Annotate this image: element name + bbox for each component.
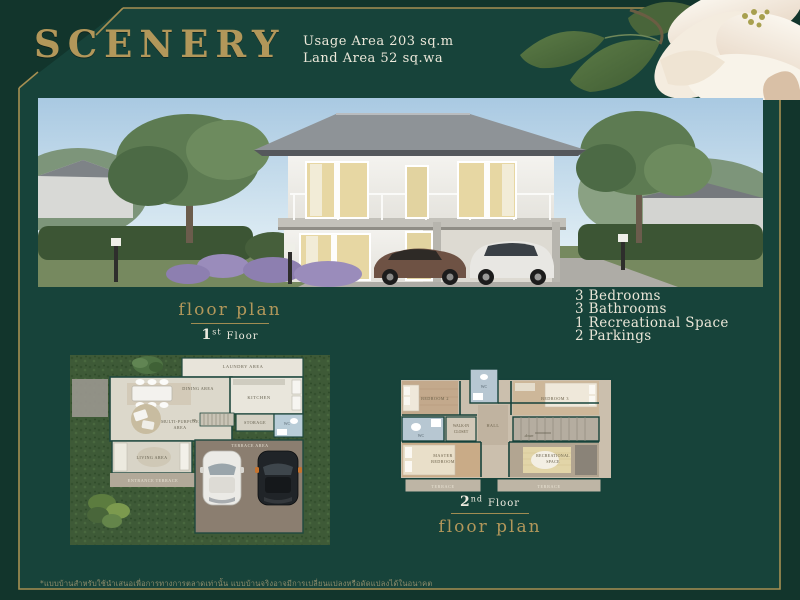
entrance-terrace-label: ENTRANCE TERRACE xyxy=(128,478,178,483)
white-car-topview xyxy=(200,451,244,505)
hall-label: HALL xyxy=(487,423,500,428)
side-pad xyxy=(72,379,108,417)
house-photo xyxy=(38,98,763,287)
multipurpose-label-2: AREA xyxy=(174,425,187,430)
rec-label-1: RECREATIONAL xyxy=(536,453,570,458)
terrace-right-label: TERRACE xyxy=(537,484,560,489)
multipurpose-area xyxy=(131,404,161,434)
terrace-area-label: TERRACE AREA xyxy=(231,443,268,448)
wc-left-label: WC xyxy=(418,433,425,438)
dining-set xyxy=(127,379,191,408)
area-specs: Usage Area 203 sq.m Land Area 52 sq.wa xyxy=(303,33,454,67)
wc-top-label: WC xyxy=(481,384,488,389)
bedroom3-label: BEDROOM 3 xyxy=(541,396,569,401)
caption-divider xyxy=(451,513,529,514)
disclaimer-text: *แบบบ้านสำหรับใช้นำเสนอเพื่อการทางการตลา… xyxy=(40,578,440,590)
floorplan2-caption: 2ndFloor floor plan xyxy=(415,494,565,537)
floorplan1-caption: floor plan 1stFloor xyxy=(155,300,305,343)
bedroom2-label: BEDROOM 2 xyxy=(421,396,449,401)
amenity-item: 2 Parkings xyxy=(575,330,729,343)
kitchen-label: KITCHEN xyxy=(247,395,270,400)
walkin-label-2: CLOSET xyxy=(454,430,469,434)
floorplan1-floor-label: 1stFloor xyxy=(155,327,305,343)
terrace-left-label: TERRACE xyxy=(431,484,454,489)
floorplan1-drawing: LAUNDRY AREA KITCHEN STORAGE WC up xyxy=(70,355,330,545)
laundry-label: LAUNDRY AREA xyxy=(223,364,264,369)
upper-windows xyxy=(306,162,516,218)
floor-number: 1 xyxy=(201,327,212,343)
stairs-down-label: down xyxy=(525,433,534,438)
kitchen-counter xyxy=(233,379,285,385)
amenities-list: 3 Bedrooms 3 Bathrooms 1 Recreational Sp… xyxy=(575,290,729,344)
floor-ordinal: st xyxy=(212,328,221,337)
dining-label: DINING AREA xyxy=(182,386,214,391)
project-title: SCENERY xyxy=(34,22,285,66)
wc-label: WC xyxy=(284,421,291,426)
walkin-label-1: WALK-IN xyxy=(453,424,469,428)
floor-number: 2 xyxy=(460,494,471,510)
floorplan1-caption-title: floor plan xyxy=(155,300,305,320)
sofa xyxy=(114,443,127,471)
magnolia-flower-decoration xyxy=(510,0,800,100)
floorplan2-floor-label: 2ndFloor xyxy=(415,494,565,510)
stairs-down: down xyxy=(513,417,599,441)
storage-label: STORAGE xyxy=(244,420,266,425)
rec-sofa xyxy=(575,445,597,475)
floor-ordinal: nd xyxy=(471,495,483,504)
floor-word: Floor xyxy=(488,498,520,509)
brochure-poster: SCENERY Usage Area 203 sq.m Land Area 52… xyxy=(0,0,800,600)
usage-area-text: Usage Area 203 sq.m xyxy=(303,33,454,50)
floor-word: Floor xyxy=(227,331,259,342)
living-label: LIVING AREA xyxy=(136,455,167,460)
master-label-2: BEDROOM xyxy=(431,459,455,464)
walkin-closet-room xyxy=(446,417,476,441)
multipurpose-label-1: MULTI-PURPOSE xyxy=(161,419,199,424)
rec-label-2: SPACE xyxy=(546,459,560,464)
floorplan2-caption-title: floor plan xyxy=(415,517,565,537)
master-label-1: MASTER xyxy=(433,453,452,458)
black-car-topview xyxy=(255,451,302,505)
land-area-text: Land Area 52 sq.wa xyxy=(303,50,454,67)
caption-divider xyxy=(191,323,269,324)
